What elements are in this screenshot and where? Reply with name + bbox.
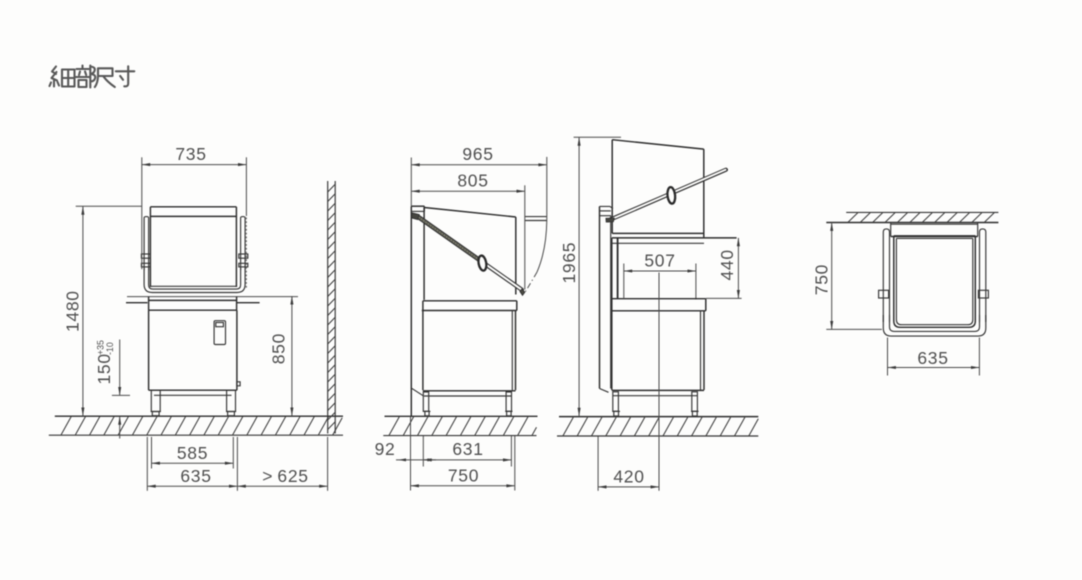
svg-text:965: 965 [462,144,493,164]
svg-text:735: 735 [175,144,206,164]
svg-text:> 625: > 625 [262,466,308,486]
svg-text:635: 635 [180,466,211,486]
svg-text:850: 850 [269,333,289,364]
svg-text:805: 805 [457,170,488,190]
svg-text:507: 507 [644,251,675,271]
svg-text:1965: 1965 [559,242,579,284]
svg-text:750: 750 [812,264,832,295]
svg-text:635: 635 [917,348,948,368]
svg-text:1480: 1480 [63,290,83,332]
svg-text:92: 92 [375,439,396,459]
svg-text:-10: -10 [105,342,115,355]
svg-text:585: 585 [177,443,208,463]
svg-text:631: 631 [452,439,483,459]
svg-text:420: 420 [613,466,644,486]
svg-text:150: 150 [94,353,114,384]
svg-text:440: 440 [717,249,737,280]
svg-text:750: 750 [448,466,479,486]
